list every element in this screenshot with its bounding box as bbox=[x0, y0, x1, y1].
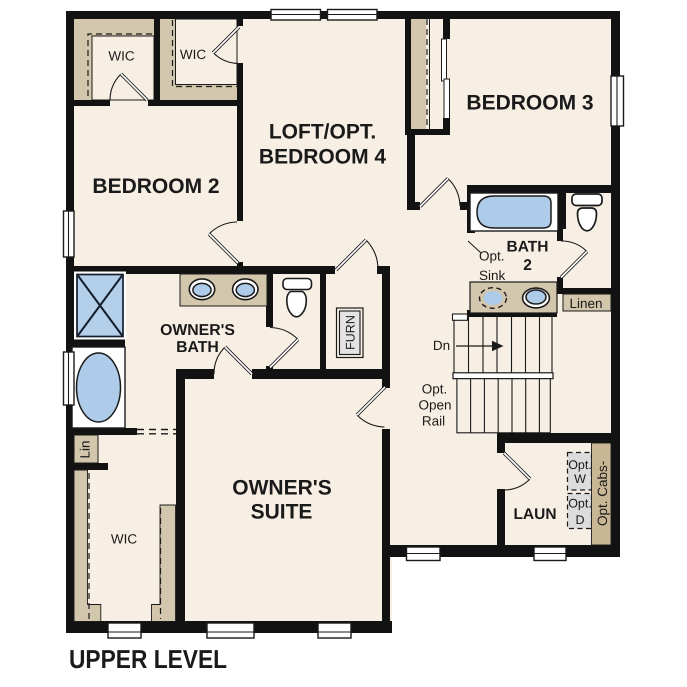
svg-text:Opt. Cabs-: Opt. Cabs- bbox=[595, 461, 610, 526]
svg-text:BEDROOM 4: BEDROOM 4 bbox=[259, 146, 387, 169]
svg-text:FURN: FURN bbox=[344, 315, 358, 350]
svg-text:2: 2 bbox=[523, 257, 532, 274]
svg-text:OWNER'S: OWNER'S bbox=[160, 322, 235, 339]
svg-text:Linen: Linen bbox=[569, 296, 602, 311]
svg-text:W: W bbox=[574, 472, 586, 486]
svg-text:Rail: Rail bbox=[422, 414, 445, 429]
svg-text:LAUN: LAUN bbox=[513, 506, 556, 523]
svg-text:LOFT/OPT.: LOFT/OPT. bbox=[269, 121, 376, 144]
svg-text:Opt.: Opt. bbox=[479, 249, 505, 264]
svg-text:BATH: BATH bbox=[507, 239, 549, 256]
svg-text:Dn: Dn bbox=[433, 338, 450, 353]
svg-text:Open: Open bbox=[418, 398, 451, 413]
svg-text:Lin: Lin bbox=[78, 440, 93, 458]
svg-text:OWNER'S: OWNER'S bbox=[232, 477, 332, 500]
svg-text:Opt.: Opt. bbox=[568, 497, 592, 511]
svg-text:Opt.: Opt. bbox=[568, 458, 592, 472]
svg-text:D: D bbox=[575, 513, 584, 527]
svg-text:WIC: WIC bbox=[180, 47, 206, 62]
svg-text:BEDROOM 2: BEDROOM 2 bbox=[92, 175, 219, 198]
svg-text:Sink: Sink bbox=[479, 268, 506, 283]
svg-text:BEDROOM 3: BEDROOM 3 bbox=[466, 92, 593, 115]
svg-text:UPPER LEVEL: UPPER LEVEL bbox=[69, 644, 227, 674]
svg-text:Opt.: Opt. bbox=[422, 382, 448, 397]
svg-text:WIC: WIC bbox=[108, 49, 134, 64]
svg-text:WIC: WIC bbox=[111, 532, 137, 547]
svg-text:SUITE: SUITE bbox=[251, 501, 313, 524]
svg-text:BATH: BATH bbox=[176, 339, 219, 356]
